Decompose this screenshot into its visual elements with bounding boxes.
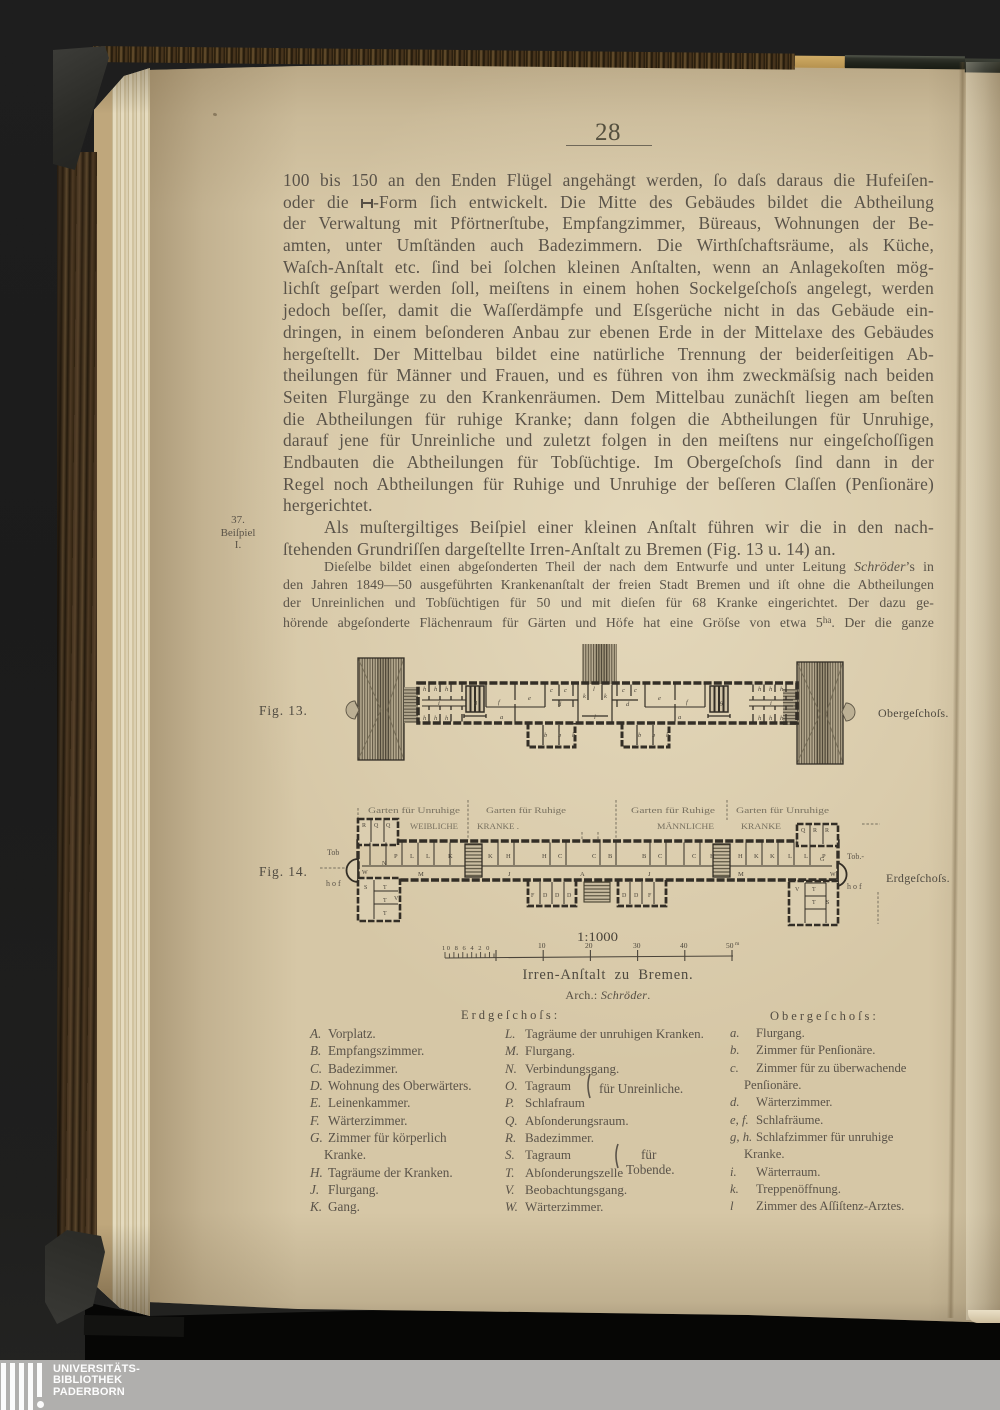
- svg-text:h: h: [769, 686, 772, 693]
- svg-text:h: h: [434, 686, 437, 693]
- svg-text:40: 40: [680, 941, 688, 950]
- svg-text:Garten für Unruhige: Garten für Unruhige: [736, 806, 830, 815]
- svg-text:V: V: [795, 887, 800, 893]
- svg-text:Garten für Unruhige: Garten für Unruhige: [368, 806, 461, 815]
- svg-text:A: A: [580, 871, 585, 878]
- svg-text:S: S: [826, 900, 829, 906]
- svg-text:B: B: [642, 853, 647, 860]
- svg-text:a: a: [500, 714, 503, 721]
- svg-text:T: T: [812, 887, 816, 893]
- svg-text:e: e: [528, 695, 531, 702]
- svg-text:T: T: [383, 911, 387, 917]
- svg-text:C: C: [558, 853, 562, 860]
- svg-text:L: L: [804, 853, 808, 860]
- svg-text:c: c: [550, 687, 553, 694]
- svg-text:1:1000: 1:1000: [577, 930, 618, 944]
- svg-text:a: a: [678, 714, 681, 721]
- svg-text:c: c: [634, 687, 637, 694]
- svg-text:k: k: [583, 693, 586, 700]
- svg-text:K: K: [754, 853, 759, 860]
- svg-text:D: D: [543, 893, 548, 899]
- svg-text:K: K: [770, 853, 775, 860]
- svg-text:L: L: [426, 853, 430, 860]
- svg-text:T: T: [812, 900, 816, 906]
- svg-text:D: D: [567, 893, 572, 899]
- svg-text:W: W: [362, 870, 368, 876]
- svg-text:W: W: [830, 872, 836, 878]
- svg-text:h: h: [423, 686, 426, 693]
- svg-text:l: l: [593, 686, 595, 693]
- svg-text:i: i: [770, 700, 772, 707]
- svg-text:T: T: [383, 885, 387, 891]
- svg-text:K: K: [448, 853, 453, 860]
- svg-text:WEIBLICHE: WEIBLICHE: [410, 822, 458, 831]
- svg-text:h: h: [434, 715, 437, 722]
- svg-text:F: F: [648, 893, 652, 899]
- svg-text:L: L: [788, 853, 792, 860]
- svg-text:D: D: [634, 893, 639, 899]
- svg-text:T: T: [383, 898, 387, 904]
- svg-text:B: B: [608, 853, 613, 860]
- svg-text:b: b: [544, 732, 548, 739]
- svg-text:KRANKE: KRANKE: [741, 822, 781, 831]
- svg-text:R: R: [825, 828, 829, 834]
- svg-text:h: h: [445, 686, 448, 693]
- svg-text:J: J: [508, 871, 511, 878]
- svg-text:D: D: [622, 893, 627, 899]
- svg-text:30: 30: [633, 941, 641, 950]
- svg-text:D: D: [555, 893, 560, 899]
- svg-text:m: m: [735, 941, 740, 947]
- svg-text:H: H: [738, 853, 743, 860]
- svg-text:c: c: [564, 687, 567, 694]
- svg-text:H: H: [506, 853, 511, 860]
- svg-text:c: c: [622, 687, 625, 694]
- svg-text:h: h: [758, 686, 761, 693]
- svg-text:H: H: [710, 853, 715, 860]
- svg-text:F: F: [531, 893, 535, 899]
- svg-text:f: f: [686, 699, 689, 706]
- svg-text:10: 10: [538, 941, 546, 950]
- svg-text:d: d: [558, 701, 562, 708]
- svg-text:Q: Q: [801, 828, 806, 834]
- svg-text:b: b: [558, 732, 562, 739]
- svg-text:b: b: [652, 732, 656, 739]
- svg-text:R: R: [362, 823, 366, 829]
- svg-text:h: h: [780, 715, 783, 722]
- svg-text:i: i: [438, 700, 440, 707]
- svg-text:50: 50: [726, 941, 734, 950]
- svg-text:M: M: [738, 871, 744, 878]
- svg-text:h: h: [445, 715, 448, 722]
- svg-text:S: S: [364, 885, 367, 891]
- svg-text:f: f: [498, 699, 501, 706]
- svg-text:N: N: [382, 861, 387, 867]
- svg-text:V: V: [394, 896, 399, 902]
- svg-text:10 8 6 4 2 0: 10 8 6 4 2 0: [442, 945, 491, 952]
- svg-text:20: 20: [585, 941, 593, 950]
- svg-text:h: h: [758, 715, 761, 722]
- svg-text:L: L: [410, 853, 414, 860]
- svg-text:h: h: [423, 715, 426, 722]
- svg-text:k: k: [604, 693, 607, 700]
- svg-text:b: b: [638, 732, 642, 739]
- svg-text:d: d: [626, 701, 630, 708]
- svg-text:C: C: [658, 853, 662, 860]
- svg-text:M: M: [418, 871, 424, 878]
- svg-text:H: H: [542, 853, 547, 860]
- svg-text:J: J: [648, 871, 651, 878]
- svg-text:h: h: [769, 715, 772, 722]
- svg-text:G: G: [820, 857, 825, 863]
- svg-text:Q: Q: [374, 823, 379, 829]
- svg-text:K: K: [488, 853, 493, 860]
- svg-text:Garten für Ruhige: Garten für Ruhige: [631, 806, 716, 815]
- svg-text:MÄNNLICHE: MÄNNLICHE: [657, 822, 714, 831]
- svg-text:e: e: [658, 695, 661, 702]
- svg-text:Q: Q: [386, 823, 391, 829]
- svg-text:l: l: [594, 714, 596, 721]
- svg-text:C: C: [592, 853, 596, 860]
- svg-text:Garten für Ruhige: Garten für Ruhige: [486, 806, 567, 815]
- svg-text:KRANKE .: KRANKE .: [477, 822, 519, 831]
- svg-text:R: R: [813, 828, 817, 834]
- svg-text:C: C: [692, 853, 696, 860]
- svg-text:P: P: [394, 853, 398, 860]
- svg-text:h: h: [780, 686, 783, 693]
